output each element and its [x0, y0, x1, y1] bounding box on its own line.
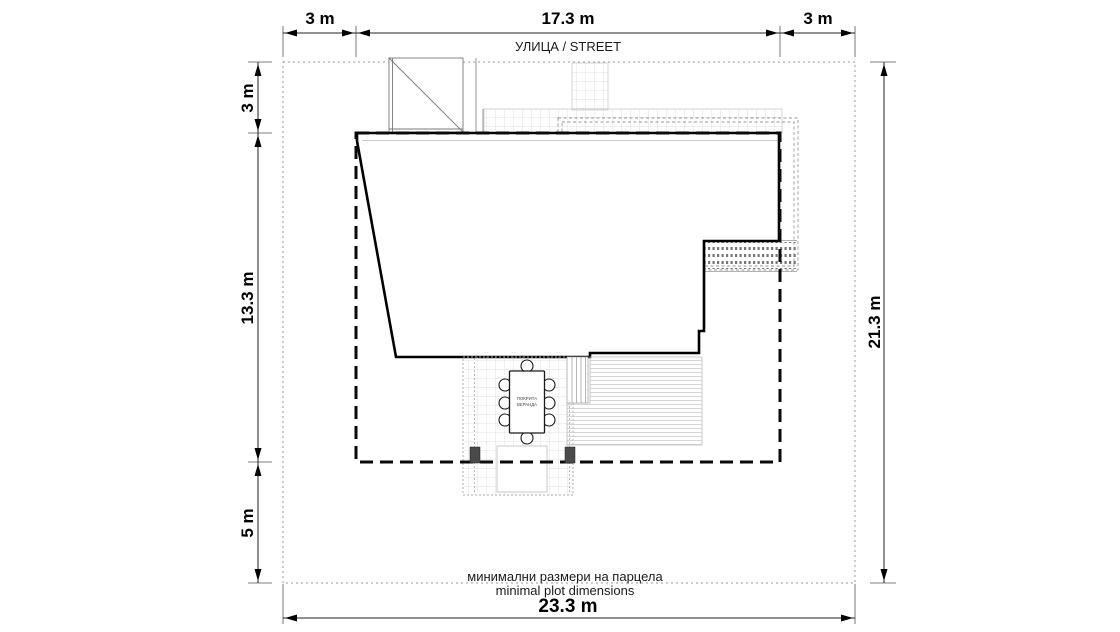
dim-left-bottom: 5 m [238, 508, 257, 537]
veranda-label-line1: ПОКРИТА [517, 396, 537, 401]
dim-top-center: 17.3 m [542, 9, 595, 28]
dim-left-middle: 13.3 m [238, 272, 257, 325]
plot-note-line2: minimal plot dimensions [496, 583, 635, 598]
dim-right-side: 21.3 m [865, 296, 884, 349]
street-label: УЛИЦА / STREET [515, 39, 621, 54]
dim-top-right: 3 m [803, 9, 832, 28]
dim-bottom: 23.3 m [538, 596, 597, 617]
veranda-step [497, 446, 547, 492]
column [565, 447, 575, 463]
dim-top-left: 3 m [305, 9, 334, 28]
stairs [567, 357, 588, 403]
column [470, 447, 480, 463]
site-plan: ПОКРИТА ВЕРАНДА [0, 0, 1120, 632]
gravel-terrace [704, 241, 797, 272]
site-plan-drawing: ПОКРИТА ВЕРАНДА [0, 0, 1120, 632]
veranda-label-line2: ВЕРАНДА [517, 402, 537, 407]
dim-left-top: 3 m [238, 83, 257, 112]
plot-note-line1: минимални размери на парцела [467, 569, 663, 584]
walkway-paving [484, 63, 782, 133]
